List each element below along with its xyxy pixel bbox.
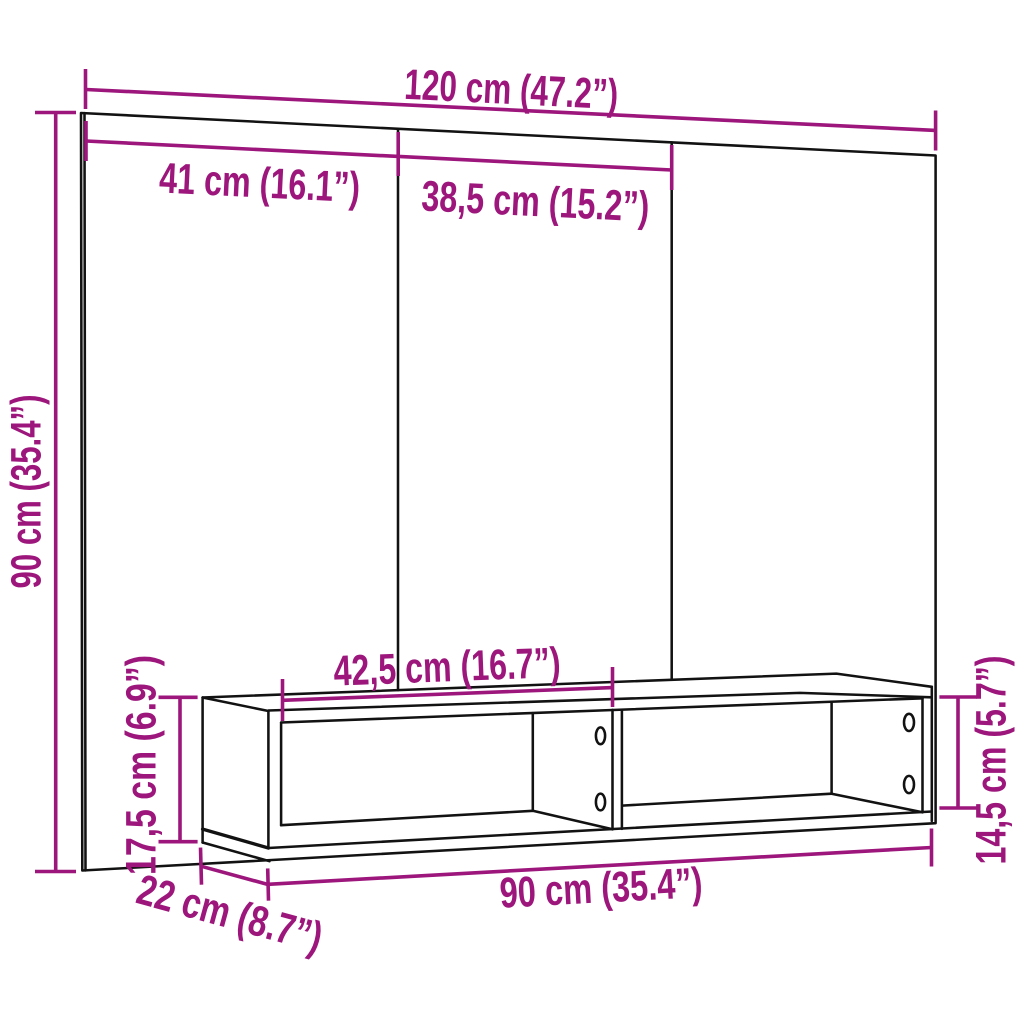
svg-text:41 cm (16.1”): 41 cm (16.1”) bbox=[158, 154, 361, 212]
svg-text:14,5 cm (5.7”): 14,5 cm (5.7”) bbox=[968, 656, 1016, 865]
svg-text:90 cm (35.4”): 90 cm (35.4”) bbox=[3, 395, 51, 589]
svg-text:42,5 cm (16.7”): 42,5 cm (16.7”) bbox=[333, 639, 562, 696]
svg-text:17,5 cm (6.9”): 17,5 cm (6.9”) bbox=[118, 655, 166, 875]
